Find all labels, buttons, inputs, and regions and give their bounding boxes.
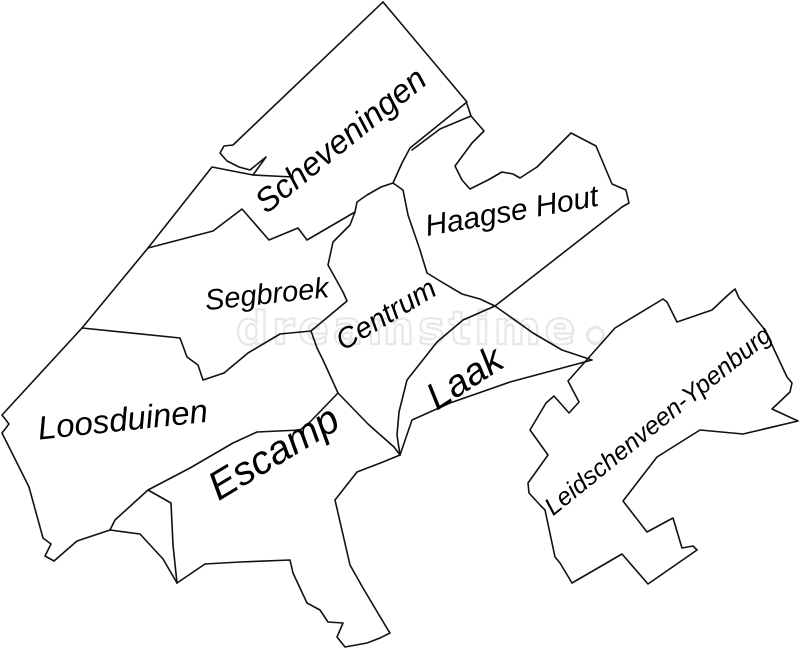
boundary-loosduinen-west-south	[2, 328, 177, 583]
district-label-centrum: Centrum	[330, 272, 442, 357]
boundary-scheveningen-segbroek	[148, 209, 355, 248]
district-label-haagse-hout: Haagse Hout	[423, 180, 603, 243]
boundary-segbroek-centrum	[311, 212, 355, 331]
district-label-leidschenveen-ypenburg: Leidschenveen-Ypenburg	[539, 321, 777, 521]
boundary-loosduinen-northeast	[82, 328, 224, 380]
map-canvas: dreamstime Scheveningen Haagse Hout	[0, 0, 800, 649]
boundary-centrum-west	[311, 331, 338, 393]
district-label-laak: Laak	[419, 337, 513, 418]
boundary-loosduinen-east-notch	[110, 490, 177, 583]
boundary-segbroek-south	[224, 331, 311, 373]
boundary-centrum-escamp	[338, 393, 400, 455]
district-label-loosduinen: Loosduinen	[36, 392, 210, 447]
district-label-segbroek: Segbroek	[203, 272, 331, 317]
districts-map-svg: Scheveningen Haagse Hout Segbroek Centru…	[0, 0, 800, 649]
district-label-scheveningen: Scheveningen	[247, 60, 433, 220]
district-label-escamp: Escamp	[200, 397, 347, 509]
boundary-haagse-hout-claw	[412, 116, 471, 150]
